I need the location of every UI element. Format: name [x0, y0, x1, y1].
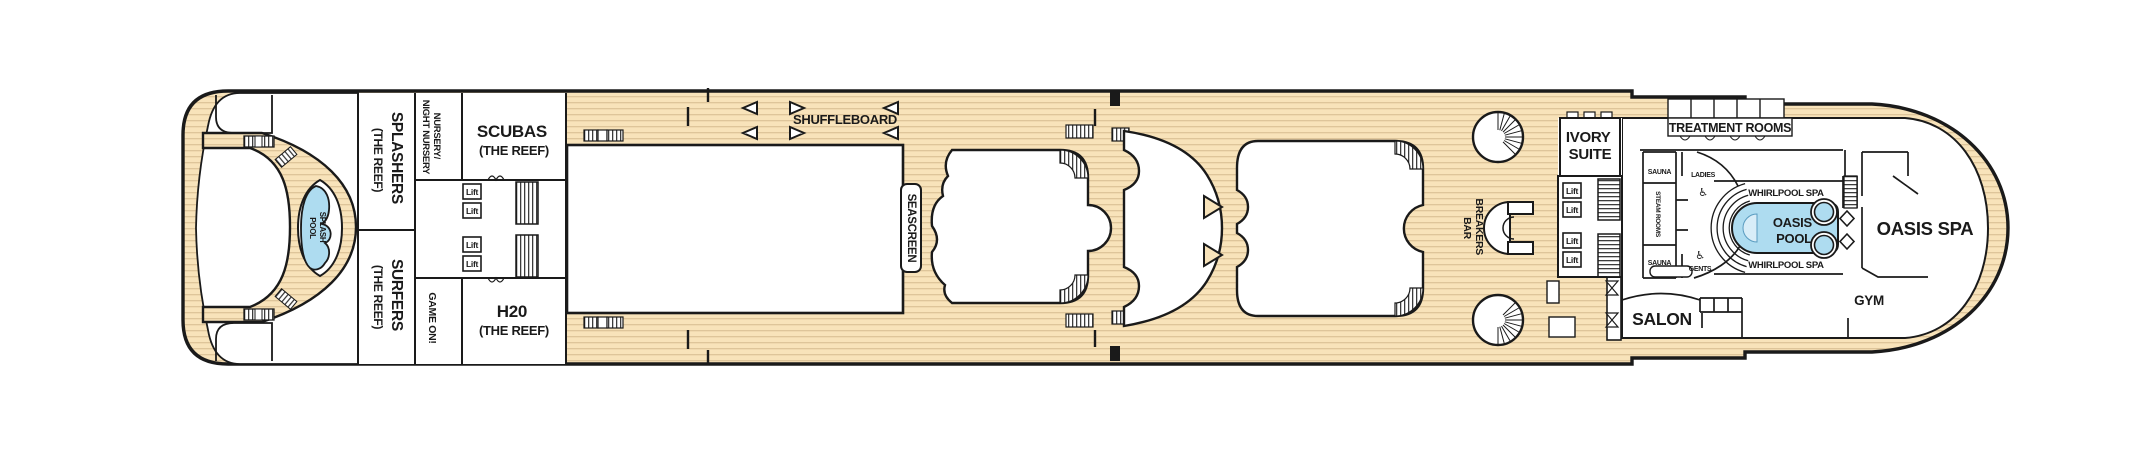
label-sauna-bottom: SAUNA — [1648, 260, 1672, 267]
stern-ladder-top-landing — [255, 136, 262, 147]
wheelchair-icon: ♿ — [1698, 187, 1708, 199]
label-scubas: SCUBAS (THE REEF) — [477, 122, 551, 158]
mast-mark-bottom — [1110, 346, 1120, 361]
label-whirlpool-spa-top: WHIRLPOOL SPA — [1748, 188, 1824, 199]
casing-forward — [1237, 141, 1423, 316]
deck-void — [567, 145, 903, 313]
label-oasis-spa: OASIS SPA — [1877, 218, 1974, 239]
kids-rooms-block: Lift Lift Lift Lift SPLASHERS (THE REEF)… — [358, 93, 566, 364]
label-sauna-top: SAUNA — [1648, 169, 1672, 176]
stairs — [1598, 179, 1620, 220]
lift-label: Lift — [1566, 186, 1578, 196]
label-oasis-pool: OASIS POOL — [1773, 215, 1815, 246]
label-salon: SALON — [1632, 309, 1692, 329]
whirlpool — [1815, 203, 1834, 222]
lift-label: Lift — [1566, 236, 1578, 246]
bar-counter-stub — [1508, 202, 1533, 214]
ship-deck-plan: SPLASH POOL Lift Lift Lift Lift SPLASHER… — [0, 0, 2151, 452]
label-seascreen: SEASCREEN — [905, 194, 917, 263]
massage-table — [1650, 266, 1692, 277]
lift-label: Lift — [466, 206, 478, 216]
label-gents: GENTS — [1689, 266, 1712, 273]
treatment-cells — [1668, 99, 1784, 118]
stern-ladder-bottom-landing — [255, 309, 262, 320]
label-treatment-rooms: TREATMENT ROOMS — [1669, 121, 1791, 135]
lift-label: Lift — [466, 259, 478, 269]
wheelchair-icon: ♿ — [1695, 250, 1705, 262]
label-game-on: GAME ON! — [426, 292, 438, 343]
spa-complex: Lift Lift Lift Lift IVORY SUITE TREATMEN… — [1547, 99, 1988, 340]
label-gym: GYM — [1854, 293, 1884, 308]
balcony-box — [1547, 281, 1559, 303]
lift-label: Lift — [466, 240, 478, 250]
label-ladies: LADIES — [1691, 172, 1716, 179]
whirlpool — [1815, 236, 1834, 255]
label-ivory-suite: IVORY SUITE — [1566, 129, 1614, 163]
label-whirlpool-spa-bottom: WHIRLPOOL SPA — [1748, 260, 1824, 271]
stern-deck: SPLASH POOL — [196, 93, 358, 364]
stairs — [516, 182, 538, 224]
funnel-casings — [932, 125, 1423, 327]
mast-mark-top — [1110, 91, 1120, 106]
stairs — [1598, 234, 1620, 277]
balcony-box — [1549, 317, 1575, 337]
pool-side-stairs — [1844, 176, 1857, 208]
label-steam-rooms: STEAM ROOMS — [1654, 191, 1661, 238]
oasis-pool-group: OASIS POOL — [1732, 199, 1854, 258]
stairs — [516, 235, 538, 277]
bar-counter-stub — [1508, 242, 1533, 254]
deck-plan-page: SPLASH POOL Lift Lift Lift Lift SPLASHER… — [0, 0, 2151, 452]
seascreen: SEASCREEN — [901, 184, 921, 272]
lift-label: Lift — [1566, 205, 1578, 215]
lift-label: Lift — [1566, 255, 1578, 265]
lift-label: Lift — [466, 187, 478, 197]
label-shuffleboard: SHUFFLEBOARD — [793, 112, 897, 127]
